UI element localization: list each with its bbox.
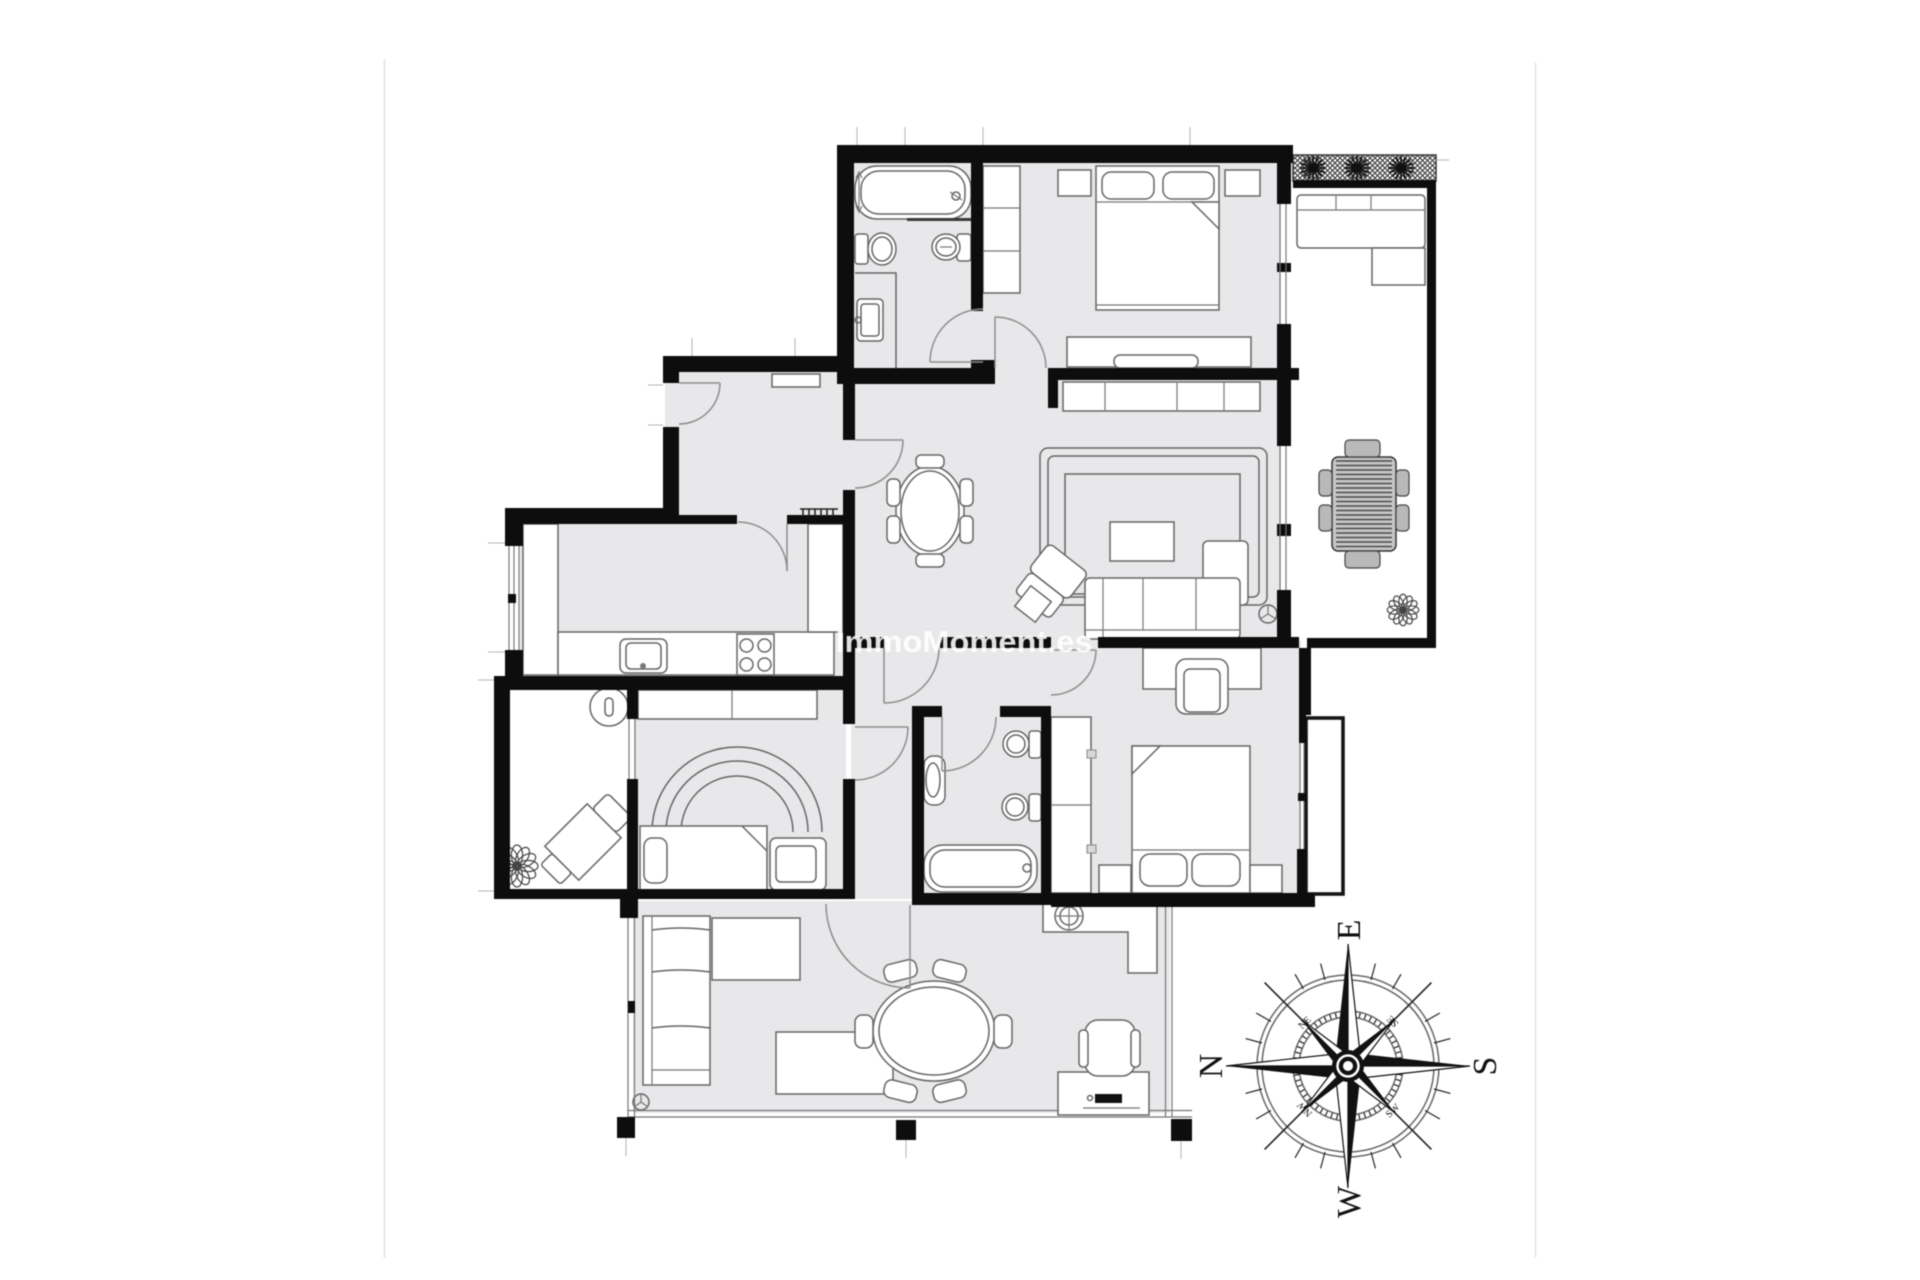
- svg-text:W: W: [1331, 1185, 1368, 1218]
- svg-text:S: S: [1467, 1057, 1504, 1076]
- svg-text:ImmoMoment.es: ImmoMoment.es: [836, 624, 1093, 659]
- svg-text:N: N: [1193, 1054, 1230, 1079]
- svg-text:E: E: [1331, 920, 1368, 941]
